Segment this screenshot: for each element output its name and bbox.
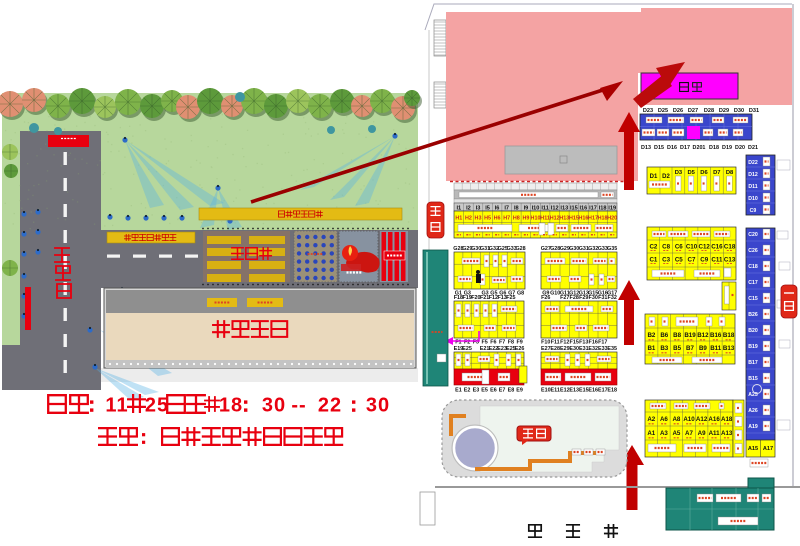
svg-text:E5: E5 <box>481 388 488 394</box>
svg-text:F5: F5 <box>481 340 487 346</box>
svg-text:A6: A6 <box>660 416 668 423</box>
svg-text:F16: F16 <box>589 340 598 346</box>
svg-text:G35: G35 <box>607 246 617 252</box>
svg-text:E6: E6 <box>490 388 497 394</box>
svg-text:E15: E15 <box>579 388 589 394</box>
svg-text:F26: F26 <box>541 295 550 301</box>
svg-text:I7: I7 <box>504 205 509 211</box>
svg-text:C6: C6 <box>675 244 683 251</box>
svg-text:A17: A17 <box>763 446 773 452</box>
svg-text:C20: C20 <box>748 232 758 238</box>
svg-text:D23: D23 <box>643 108 653 114</box>
svg-text:H10: H10 <box>531 216 541 222</box>
svg-text:E10: E10 <box>541 388 551 394</box>
svg-text:D26: D26 <box>673 108 683 114</box>
svg-text:A19: A19 <box>748 424 758 430</box>
svg-text:D20: D20 <box>735 145 745 151</box>
svg-text:E32: E32 <box>588 346 598 352</box>
svg-text:B2: B2 <box>647 332 655 339</box>
svg-text:C2: C2 <box>649 244 657 251</box>
svg-text:--: -- <box>291 395 306 417</box>
svg-text:B16: B16 <box>710 332 722 339</box>
svg-text:E27: E27 <box>541 346 551 352</box>
svg-text:D15: D15 <box>654 145 664 151</box>
svg-text:H17: H17 <box>588 216 598 222</box>
svg-text:D6: D6 <box>700 170 708 176</box>
svg-text:A8: A8 <box>672 416 680 423</box>
svg-text:A2: A2 <box>647 416 655 423</box>
svg-text:I2: I2 <box>466 205 471 211</box>
svg-text:F29: F29 <box>579 295 588 301</box>
svg-text:B13: B13 <box>723 345 735 352</box>
svg-text:D19: D19 <box>722 145 732 151</box>
svg-text:D25: D25 <box>658 108 668 114</box>
svg-text:I3: I3 <box>476 205 481 211</box>
svg-text:D18: D18 <box>709 145 719 151</box>
svg-text:C12: C12 <box>699 244 711 251</box>
svg-text:H20: H20 <box>607 216 617 222</box>
svg-text:D21: D21 <box>748 145 758 151</box>
svg-text:B6: B6 <box>660 332 668 339</box>
svg-text:D22: D22 <box>748 160 758 166</box>
svg-text:E29: E29 <box>560 346 570 352</box>
svg-text:C8: C8 <box>662 244 670 251</box>
svg-text:E30: E30 <box>569 346 579 352</box>
svg-text:A25: A25 <box>748 392 758 398</box>
svg-text:F12: F12 <box>560 340 569 346</box>
svg-text:F31: F31 <box>598 295 607 301</box>
svg-text:A3: A3 <box>660 430 668 437</box>
svg-text:E18: E18 <box>607 388 617 394</box>
svg-text:F30: F30 <box>589 295 598 301</box>
svg-text:G10: G10 <box>550 291 560 297</box>
svg-text:A10: A10 <box>683 416 695 423</box>
svg-text:I1: I1 <box>456 205 461 211</box>
svg-text:E8: E8 <box>508 388 515 394</box>
svg-text:C5: C5 <box>675 257 683 264</box>
svg-text:E33: E33 <box>598 346 608 352</box>
svg-text:H7: H7 <box>503 216 510 222</box>
svg-text:B9: B9 <box>699 345 707 352</box>
svg-text:A11: A11 <box>709 430 721 437</box>
svg-text:E25: E25 <box>462 346 472 352</box>
svg-text:11: 11 <box>105 395 128 417</box>
svg-text:E11: E11 <box>551 388 560 394</box>
svg-text:E16: E16 <box>588 388 598 394</box>
svg-text:D31: D31 <box>749 108 759 114</box>
svg-text:E7: E7 <box>499 388 506 394</box>
svg-text:A9: A9 <box>698 430 706 437</box>
svg-text:A5: A5 <box>672 430 680 437</box>
svg-text:C11: C11 <box>711 257 723 264</box>
svg-text:I6: I6 <box>495 205 500 211</box>
svg-text:I19: I19 <box>608 205 616 211</box>
svg-text:E26: E26 <box>515 346 525 352</box>
svg-text:B11: B11 <box>710 345 722 352</box>
svg-text:D3: D3 <box>675 170 683 176</box>
svg-text:D10: D10 <box>748 196 758 202</box>
svg-text:F17: F17 <box>598 340 607 346</box>
svg-text:H8: H8 <box>513 216 520 222</box>
svg-text:B3: B3 <box>660 345 668 352</box>
svg-text:D16: D16 <box>667 145 677 151</box>
svg-text:I9: I9 <box>524 205 529 211</box>
svg-text:E13: E13 <box>569 388 579 394</box>
svg-text:C16: C16 <box>711 244 723 251</box>
svg-text:I11: I11 <box>541 205 548 211</box>
svg-text:E9: E9 <box>516 388 523 394</box>
svg-text:D28: D28 <box>704 108 714 114</box>
svg-text:C7: C7 <box>688 257 696 264</box>
svg-text:E28: E28 <box>550 346 560 352</box>
svg-text:C26: C26 <box>748 248 758 254</box>
svg-text:H16: H16 <box>578 216 588 222</box>
svg-text:F32: F32 <box>608 295 617 301</box>
svg-text:E1: E1 <box>455 388 462 394</box>
svg-text:D17: D17 <box>680 145 690 151</box>
svg-text:C3: C3 <box>662 257 670 264</box>
svg-text:I18: I18 <box>599 205 607 211</box>
svg-text:I17: I17 <box>589 205 597 211</box>
svg-text:30: 30 <box>366 395 390 417</box>
svg-text:H2: H2 <box>465 216 472 222</box>
svg-text:A12: A12 <box>696 416 708 423</box>
svg-text:F7: F7 <box>499 340 505 346</box>
svg-text:A7: A7 <box>685 430 693 437</box>
svg-text:B8: B8 <box>673 332 681 339</box>
svg-text:B20: B20 <box>748 328 758 334</box>
svg-text:I8: I8 <box>514 205 519 211</box>
svg-text:C1: C1 <box>649 257 657 264</box>
svg-text:A26: A26 <box>748 408 758 414</box>
svg-text:C15: C15 <box>748 296 758 302</box>
svg-text:A1: A1 <box>647 430 655 437</box>
svg-text:D13: D13 <box>641 145 651 151</box>
svg-text:F8: F8 <box>508 340 514 346</box>
svg-text:F10: F10 <box>541 340 550 346</box>
svg-text:H6: H6 <box>494 216 501 222</box>
svg-text:A18: A18 <box>721 416 733 423</box>
svg-text:C17: C17 <box>748 280 758 286</box>
svg-text:B15: B15 <box>748 376 758 382</box>
svg-text:I12: I12 <box>551 205 559 211</box>
svg-text:I15: I15 <box>570 205 578 211</box>
svg-text:B19: B19 <box>684 332 696 339</box>
svg-text:I10: I10 <box>532 205 540 211</box>
svg-text:C10: C10 <box>686 244 698 251</box>
svg-text:D30: D30 <box>734 108 744 114</box>
svg-text:A15: A15 <box>748 446 758 452</box>
svg-text:G28: G28 <box>515 246 525 252</box>
svg-text:C18: C18 <box>724 244 736 251</box>
svg-text:C9: C9 <box>700 257 708 264</box>
svg-text:D12: D12 <box>748 172 758 178</box>
svg-text:F9: F9 <box>516 340 522 346</box>
svg-text:B12: B12 <box>697 332 709 339</box>
svg-text:H13: H13 <box>559 216 569 222</box>
svg-text:H12: H12 <box>550 216 560 222</box>
svg-text:22: 22 <box>318 395 342 417</box>
svg-text:B19: B19 <box>748 344 758 350</box>
svg-text:D2: D2 <box>662 174 670 180</box>
svg-text:H3: H3 <box>475 216 482 222</box>
svg-text:D7: D7 <box>713 170 720 176</box>
svg-text:B7: B7 <box>686 345 694 352</box>
svg-text:H11: H11 <box>540 216 550 222</box>
svg-text:E35: E35 <box>607 346 617 352</box>
svg-text:D1: D1 <box>650 174 658 180</box>
svg-text:D29: D29 <box>719 108 729 114</box>
svg-text:E2: E2 <box>464 388 471 394</box>
svg-text:D27: D27 <box>688 108 698 114</box>
svg-text:30: 30 <box>262 395 286 417</box>
svg-text:I16: I16 <box>580 205 588 211</box>
svg-text:C13: C13 <box>724 257 736 264</box>
svg-text:18: 18 <box>219 395 243 417</box>
svg-text:H9: H9 <box>522 216 529 222</box>
svg-text:E31: E31 <box>579 346 589 352</box>
svg-text:B18: B18 <box>723 332 735 339</box>
svg-text:B5: B5 <box>673 345 681 352</box>
svg-text:H18: H18 <box>598 216 608 222</box>
svg-text:E12: E12 <box>560 388 570 394</box>
svg-text:F13: F13 <box>579 340 588 346</box>
svg-text:F27: F27 <box>560 295 569 301</box>
svg-text:F11: F11 <box>551 340 560 346</box>
svg-text:C9: C9 <box>750 208 757 214</box>
svg-text:D5: D5 <box>687 170 695 176</box>
svg-text:G8: G8 <box>517 291 524 297</box>
svg-text:I13: I13 <box>560 205 568 211</box>
svg-text:D8: D8 <box>726 170 734 176</box>
svg-text:E17: E17 <box>598 388 608 394</box>
svg-text:C18: C18 <box>748 264 758 270</box>
svg-text:H1: H1 <box>455 216 462 222</box>
svg-text:F6: F6 <box>490 340 496 346</box>
svg-text:F28: F28 <box>570 295 579 301</box>
svg-text:F15: F15 <box>570 340 579 346</box>
svg-text:H15: H15 <box>569 216 579 222</box>
svg-text:F25: F25 <box>506 295 515 301</box>
svg-text:H5: H5 <box>484 216 491 222</box>
svg-text:D11: D11 <box>748 184 757 190</box>
svg-text:E3: E3 <box>473 388 480 394</box>
svg-text:D201: D201 <box>693 145 706 151</box>
svg-text:B1: B1 <box>647 345 655 352</box>
svg-text:B26: B26 <box>748 312 758 318</box>
svg-text:A16: A16 <box>708 416 720 423</box>
svg-text:B17: B17 <box>748 360 758 366</box>
svg-text:I5: I5 <box>485 205 490 211</box>
svg-text:A13: A13 <box>721 430 733 437</box>
svg-text:25: 25 <box>145 395 169 417</box>
